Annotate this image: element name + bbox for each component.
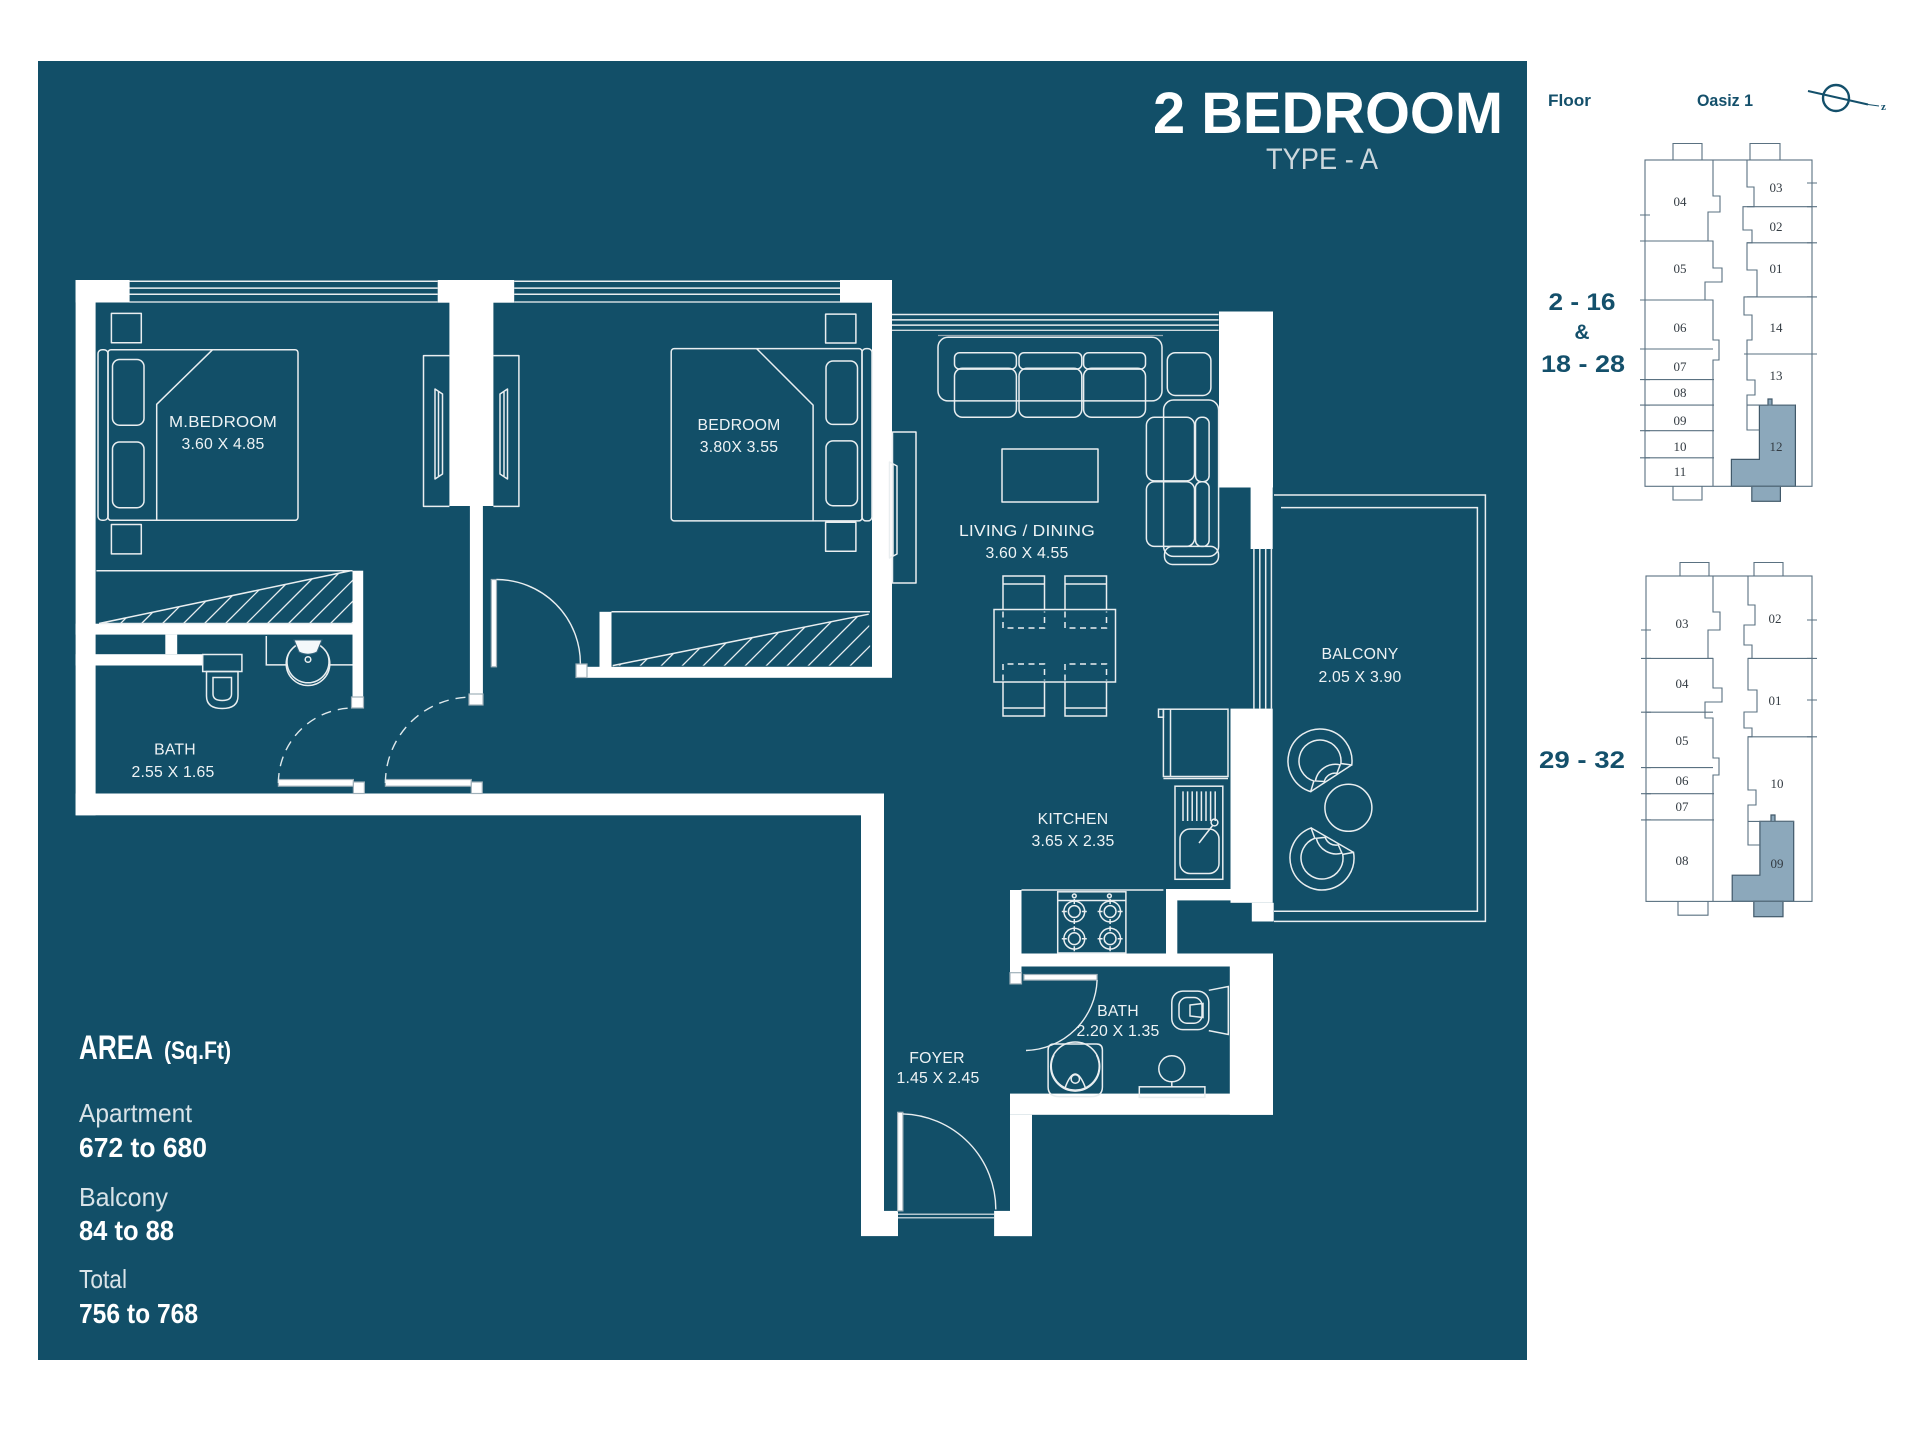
svg-text:3.80X 3.55: 3.80X 3.55: [700, 439, 778, 456]
svg-text:AREA: AREA: [79, 1029, 153, 1067]
svg-text:14: 14: [1770, 320, 1784, 335]
svg-text:3.60 X 4.55: 3.60 X 4.55: [985, 545, 1068, 562]
svg-text:Floor: Floor: [1548, 91, 1591, 110]
svg-text:1.45 X 2.45: 1.45 X 2.45: [896, 1070, 979, 1087]
svg-text:13: 13: [1770, 368, 1783, 383]
svg-text:672 to 680: 672 to 680: [79, 1132, 207, 1163]
svg-text:Apartment: Apartment: [79, 1098, 193, 1128]
svg-text:01: 01: [1770, 261, 1783, 276]
svg-text:BATH: BATH: [1097, 1003, 1139, 1020]
svg-text:07: 07: [1676, 799, 1690, 814]
svg-text:12: 12: [1770, 439, 1783, 454]
svg-text:18 - 28: 18 - 28: [1541, 351, 1625, 378]
svg-text:03: 03: [1676, 616, 1689, 631]
svg-text:07: 07: [1674, 359, 1688, 374]
svg-text:10: 10: [1674, 439, 1687, 454]
svg-text:2.20 X 1.35: 2.20 X 1.35: [1076, 1023, 1159, 1040]
svg-text:05: 05: [1674, 261, 1687, 276]
svg-text:2 BEDROOM: 2 BEDROOM: [1153, 81, 1503, 146]
svg-text:01: 01: [1769, 693, 1782, 708]
svg-text:11: 11: [1674, 464, 1687, 479]
svg-text:&: &: [1574, 321, 1589, 344]
svg-text:84 to 88: 84 to 88: [79, 1215, 174, 1246]
svg-text:10: 10: [1771, 776, 1784, 791]
svg-text:09: 09: [1771, 856, 1784, 871]
svg-text:09: 09: [1674, 413, 1687, 428]
svg-text:(Sq.Ft): (Sq.Ft): [164, 1037, 231, 1065]
svg-text:04: 04: [1674, 194, 1688, 209]
svg-text:04: 04: [1676, 676, 1690, 691]
svg-text:29 - 32: 29 - 32: [1539, 747, 1625, 774]
svg-text:LIVING / DINING: LIVING / DINING: [959, 523, 1095, 540]
svg-text:M.BEDROOM: M.BEDROOM: [169, 414, 277, 431]
svg-text:02: 02: [1769, 611, 1782, 626]
svg-text:3.65 X 2.35: 3.65 X 2.35: [1031, 833, 1114, 850]
svg-text:03: 03: [1770, 180, 1783, 195]
svg-text:08: 08: [1676, 853, 1689, 868]
svg-text:BEDROOM: BEDROOM: [697, 417, 780, 434]
svg-text:2.05 X 3.90: 2.05 X 3.90: [1318, 669, 1401, 686]
svg-text:2 - 16: 2 - 16: [1549, 289, 1616, 316]
svg-text:Balcony: Balcony: [79, 1182, 168, 1212]
svg-text:2.55 X 1.65: 2.55 X 1.65: [131, 764, 214, 781]
svg-text:06: 06: [1676, 773, 1690, 788]
svg-text:TYPE - A: TYPE - A: [1266, 143, 1378, 176]
svg-text:BATH: BATH: [154, 742, 196, 759]
svg-text:3.60 X 4.85: 3.60 X 4.85: [181, 436, 264, 453]
svg-text:Oasiz 1: Oasiz 1: [1697, 91, 1753, 110]
svg-text:756 to 768: 756 to 768: [79, 1298, 198, 1329]
svg-text:06: 06: [1674, 320, 1688, 335]
svg-text:FOYER: FOYER: [909, 1050, 964, 1067]
svg-text:BALCONY: BALCONY: [1322, 646, 1399, 663]
svg-text:KITCHEN: KITCHEN: [1038, 811, 1109, 828]
svg-text:05: 05: [1676, 733, 1689, 748]
svg-text:z: z: [1881, 101, 1886, 113]
svg-text:02: 02: [1770, 219, 1783, 234]
svg-text:Total: Total: [79, 1264, 127, 1294]
svg-text:08: 08: [1674, 385, 1687, 400]
